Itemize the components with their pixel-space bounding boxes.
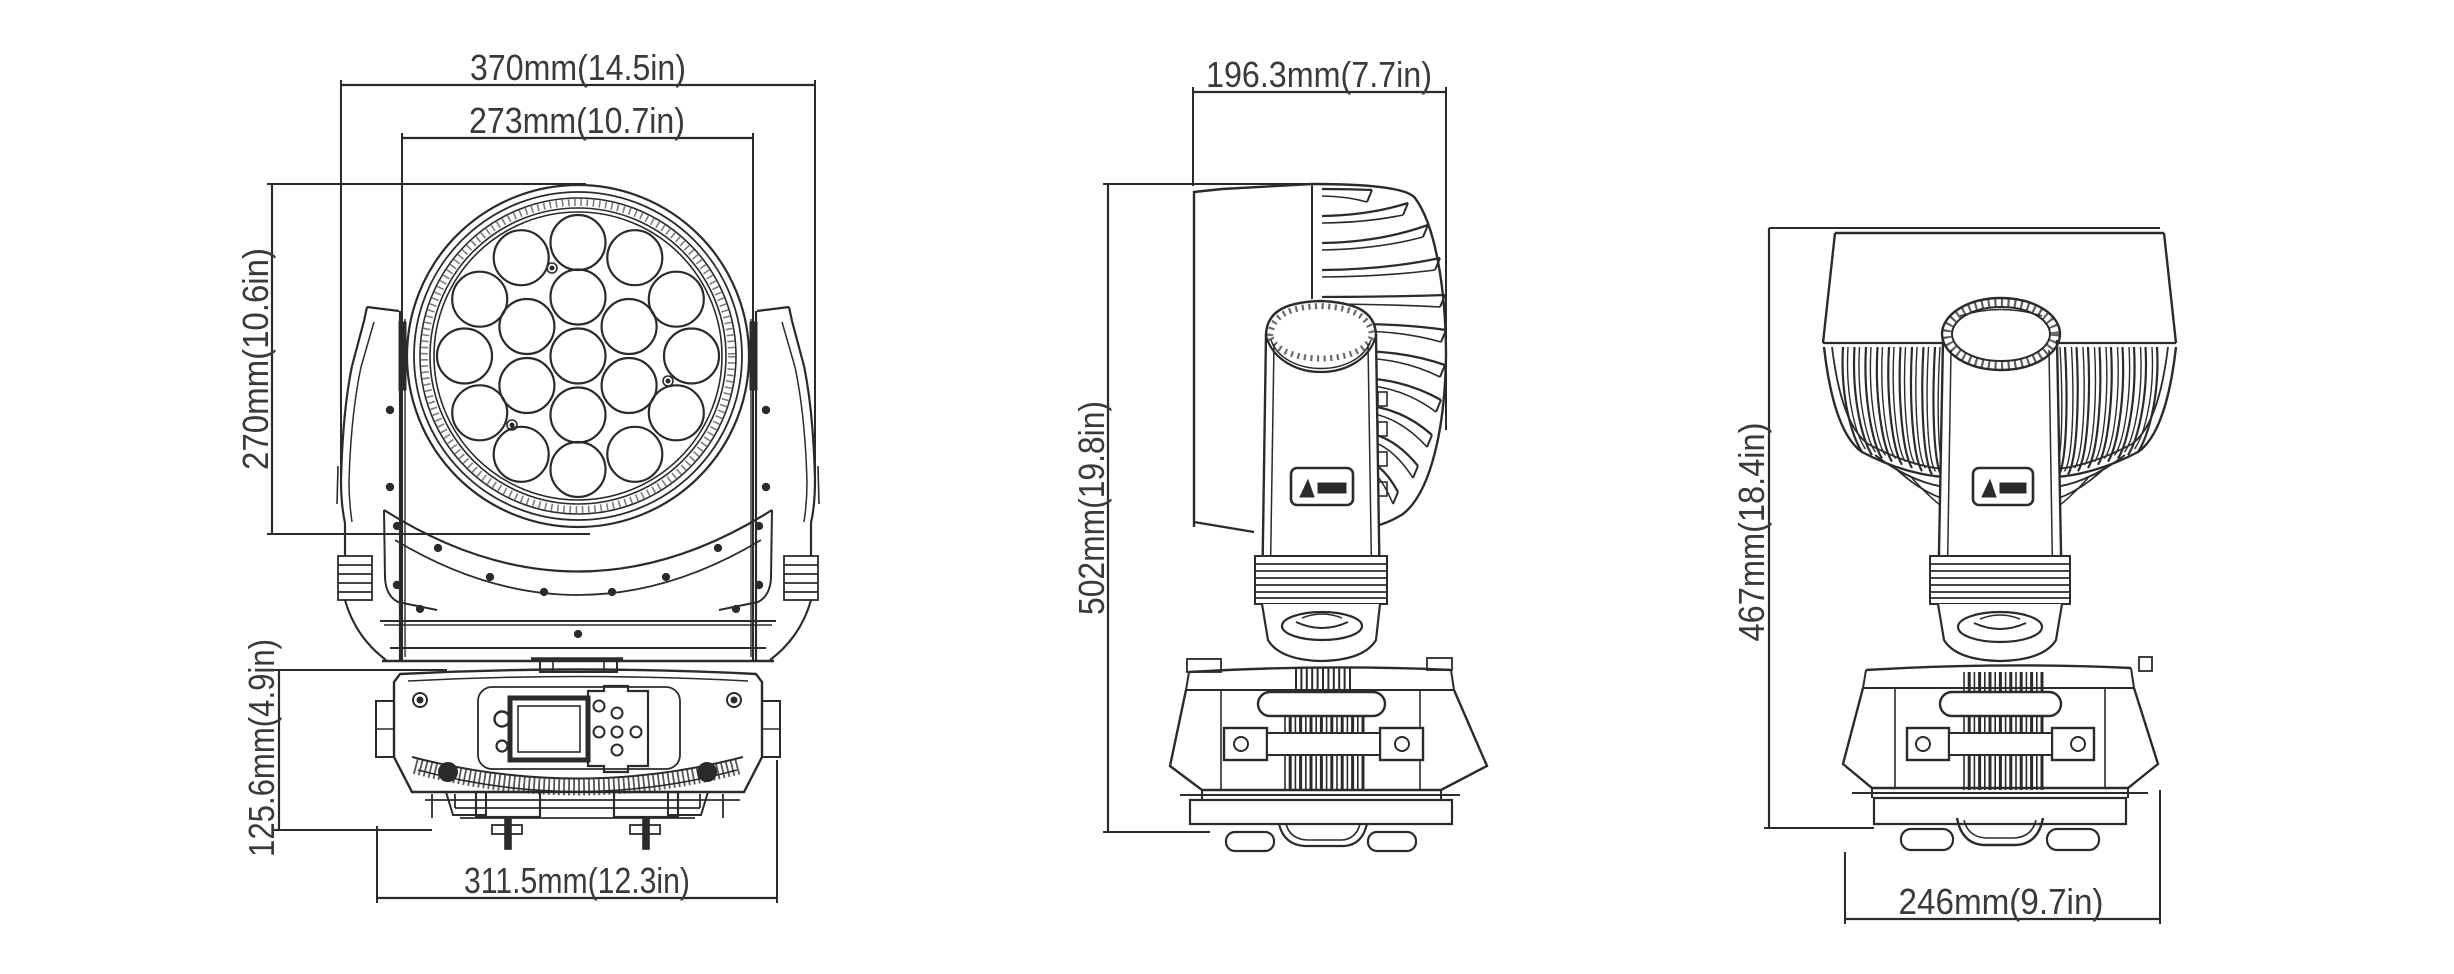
svg-text:270mm(10.6in): 270mm(10.6in) <box>235 248 276 470</box>
svg-text:196.3mm(7.7in): 196.3mm(7.7in) <box>1206 54 1432 95</box>
svg-text:467mm(18.4in): 467mm(18.4in) <box>1731 423 1772 642</box>
svg-text:370mm(14.5in): 370mm(14.5in) <box>470 47 686 88</box>
svg-text:502mm(19.8in): 502mm(19.8in) <box>1071 401 1112 615</box>
svg-text:273mm(10.7in): 273mm(10.7in) <box>469 100 685 141</box>
svg-text:311.5mm(12.3in): 311.5mm(12.3in) <box>464 860 690 901</box>
svg-text:246mm(9.7in): 246mm(9.7in) <box>1899 881 2104 922</box>
svg-text:125.6mm(4.9in): 125.6mm(4.9in) <box>241 639 282 857</box>
